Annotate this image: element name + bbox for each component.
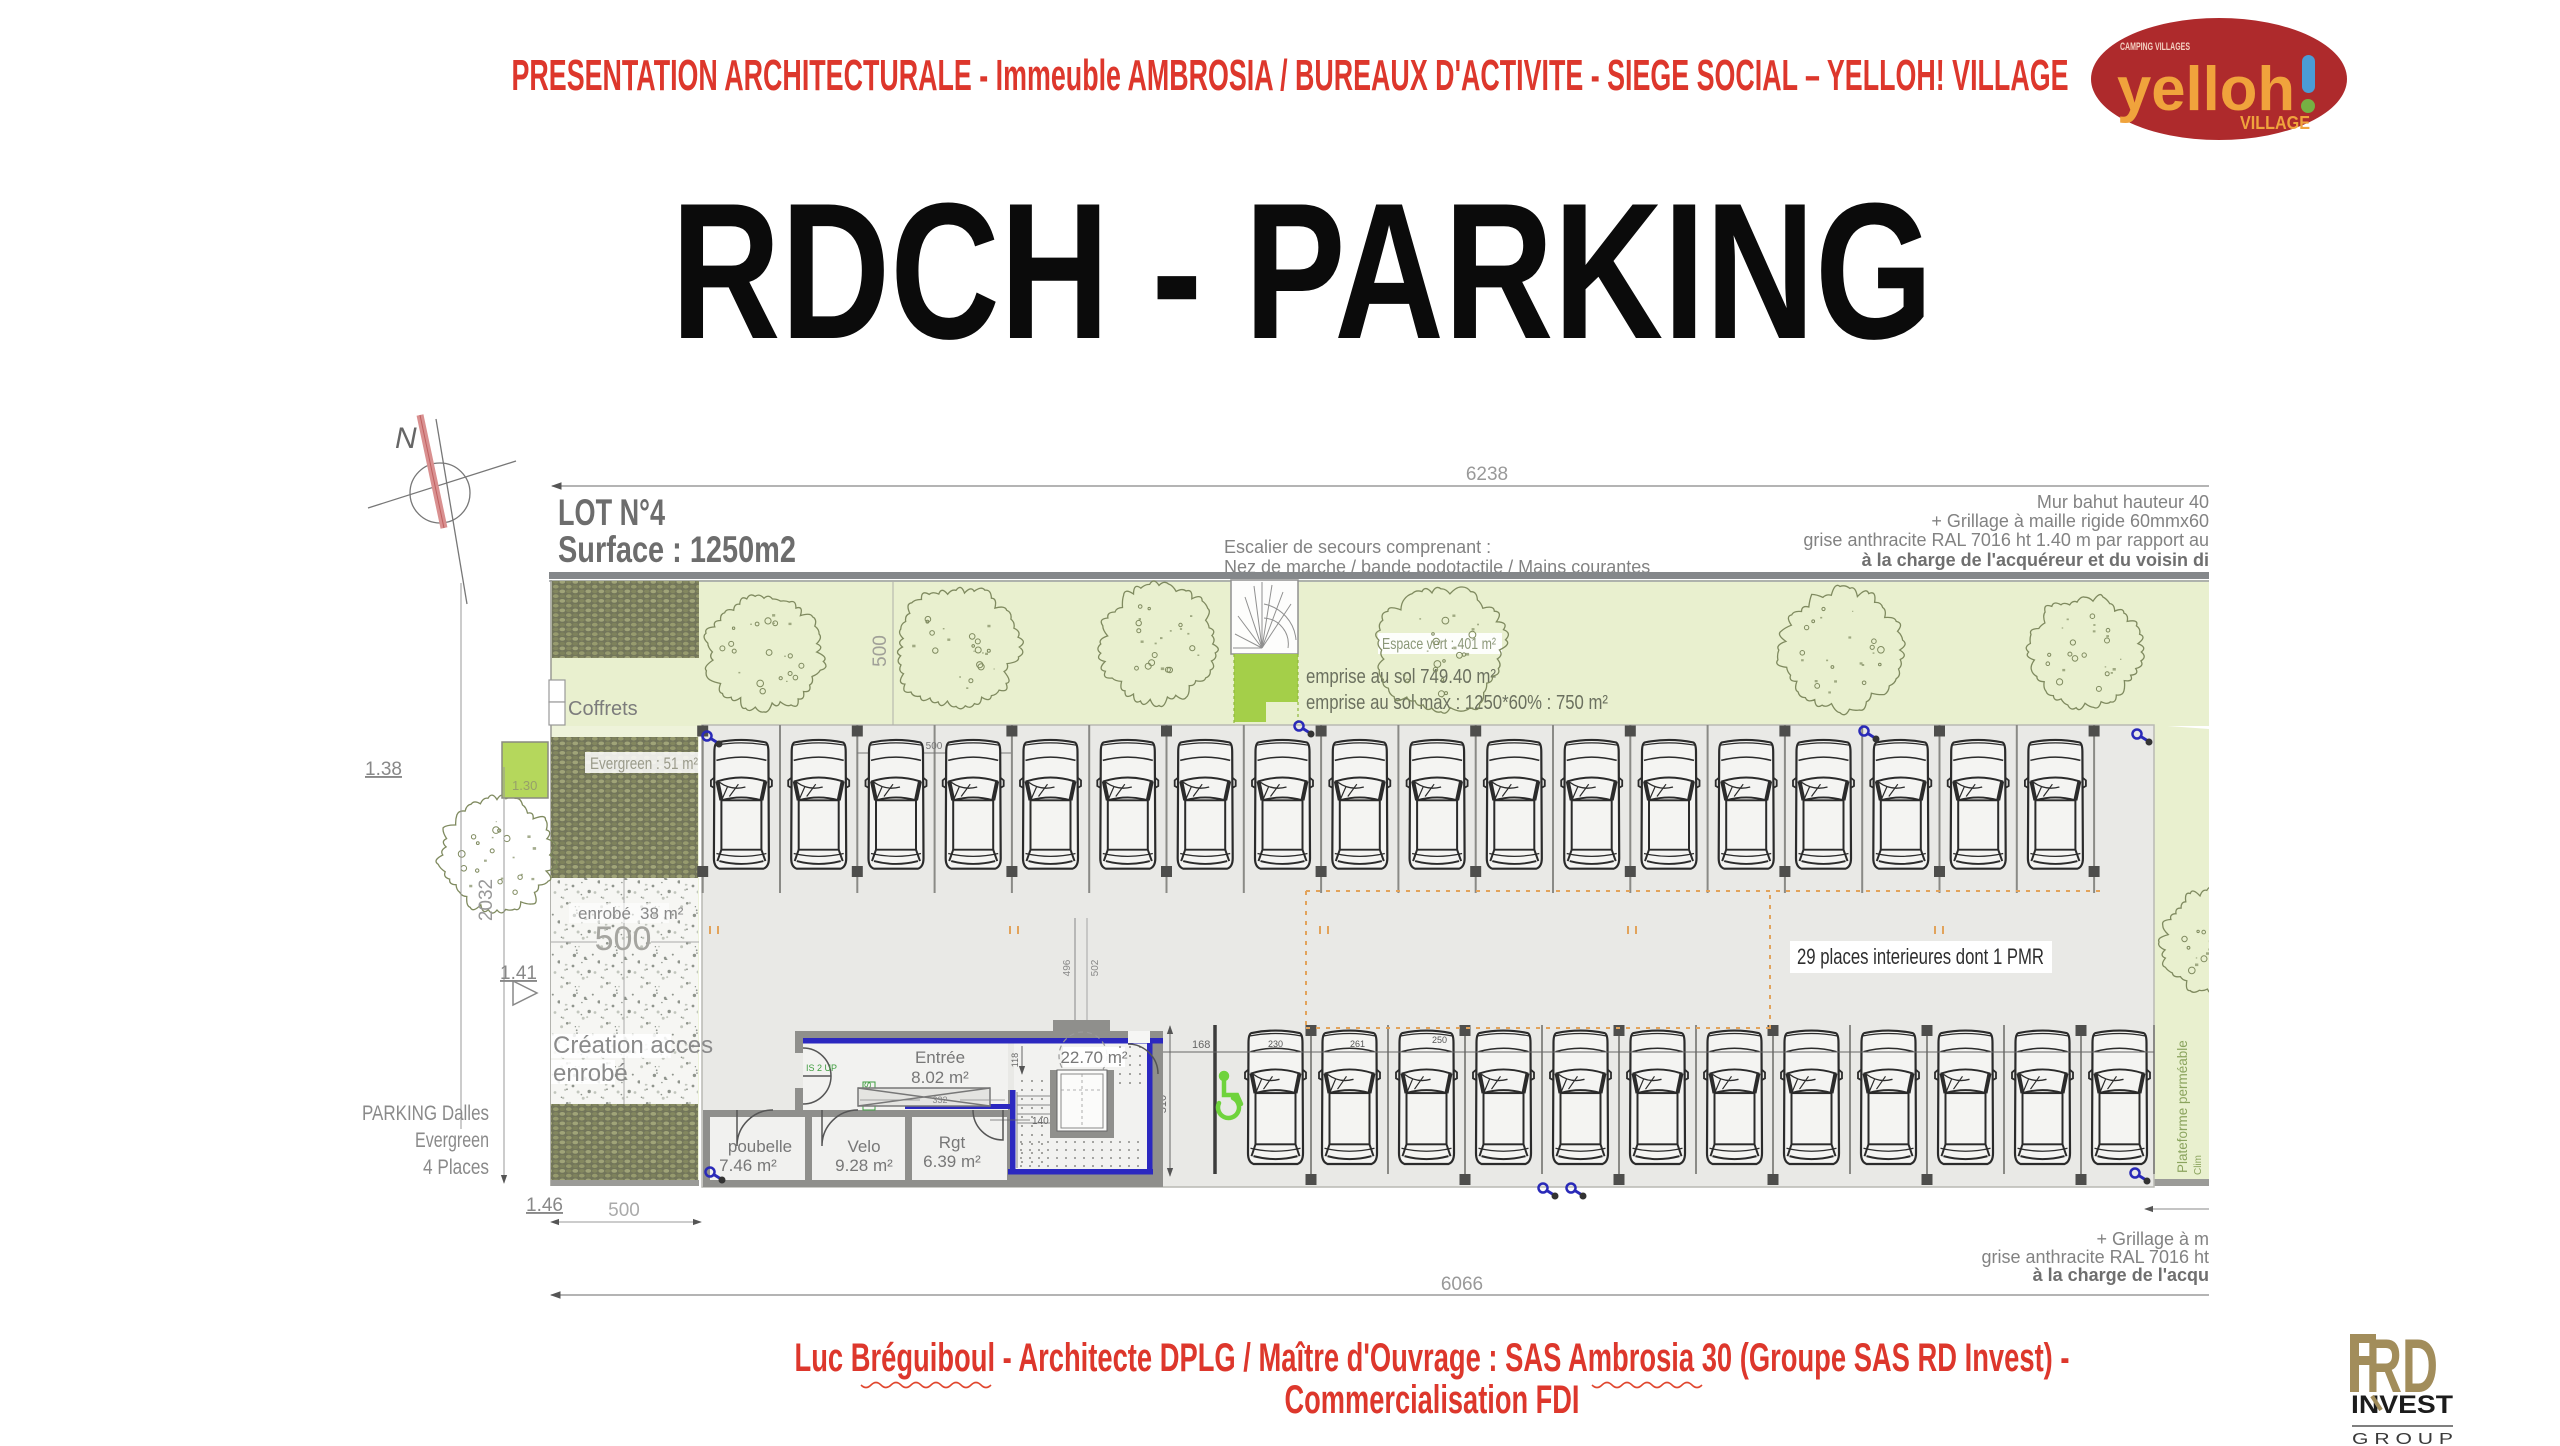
- svg-text:332: 332: [932, 1095, 947, 1105]
- svg-text:Plateforme perméable: Plateforme perméable: [2175, 1040, 2190, 1173]
- svg-text:PARKING Dalles: PARKING Dalles: [362, 1102, 489, 1125]
- svg-text:261: 261: [1350, 1039, 1365, 1049]
- svg-text:118: 118: [1010, 1053, 1020, 1067]
- svg-text:500: 500: [595, 920, 652, 958]
- svg-text:140: 140: [1032, 1116, 1049, 1127]
- svg-text:Commercialisation FDI: Commercialisation FDI: [1285, 1378, 1580, 1422]
- svg-text:22.70 m²: 22.70 m²: [1060, 1048, 1127, 1067]
- svg-text:230: 230: [1268, 1039, 1283, 1049]
- svg-text:Mur bahut hauteur 40: Mur bahut hauteur 40: [2037, 492, 2209, 512]
- svg-text:Rgt: Rgt: [939, 1133, 966, 1152]
- svg-text:1.46: 1.46: [526, 1195, 563, 1216]
- svg-text:4 Places: 4 Places: [423, 1156, 489, 1179]
- svg-text:LOT N°4: LOT N°4: [558, 492, 665, 533]
- svg-text:Velo: Velo: [847, 1137, 880, 1156]
- svg-text:8.02 m²: 8.02 m²: [911, 1068, 969, 1087]
- svg-text:Clim: Clim: [2193, 1155, 2204, 1175]
- svg-text:Evergreen: Evergreen: [415, 1129, 489, 1152]
- svg-text:496: 496: [1062, 959, 1073, 976]
- svg-text:poubelle: poubelle: [728, 1137, 792, 1156]
- svg-text:1.38: 1.38: [365, 759, 402, 780]
- svg-text:Coffrets: Coffrets: [568, 698, 638, 720]
- svg-text:IS 2 UP: IS 2 UP: [806, 1063, 837, 1073]
- svg-text:Espace vert : 401 m²: Espace vert : 401 m²: [1382, 636, 1497, 653]
- svg-text:6.39 m²: 6.39 m²: [923, 1152, 981, 1171]
- svg-text:enrobé: enrobé: [553, 1060, 628, 1087]
- svg-text:+ Grillage à m: + Grillage à m: [2096, 1229, 2209, 1249]
- svg-text:500: 500: [608, 1200, 640, 1221]
- svg-text:G R O U P: G R O U P: [2352, 1431, 2453, 1446]
- svg-text:Surface : 1250m2: Surface : 1250m2: [558, 529, 796, 570]
- svg-text:Entrée: Entrée: [915, 1048, 965, 1067]
- svg-text:6066: 6066: [1441, 1274, 1483, 1295]
- svg-text:Escalier de secours comprenant: Escalier de secours comprenant :: [1224, 537, 1491, 557]
- svg-text:grise anthracite RAL 7016 ht 1: grise anthracite RAL 7016 ht 1.40 m par …: [1803, 530, 2209, 550]
- svg-text:6238: 6238: [1466, 464, 1508, 485]
- svg-text:2032: 2032: [476, 879, 497, 921]
- svg-text:250: 250: [1432, 1035, 1447, 1045]
- svg-text:N: N: [395, 422, 417, 455]
- svg-text:+ Grillage à maille rigide 60m: + Grillage à maille rigide 60mmx60: [1931, 511, 2209, 531]
- svg-text:9.28 m²: 9.28 m²: [835, 1156, 893, 1175]
- svg-text:Création acces: Création acces: [553, 1032, 713, 1059]
- svg-text:CAMPING VILLAGES: CAMPING VILLAGES: [2120, 41, 2190, 53]
- svg-text:INVEST: INVEST: [2351, 1391, 2453, 1419]
- svg-text:PRESENTATION ARCHITECTURALE -: PRESENTATION ARCHITECTURALE - Immeuble A…: [512, 51, 2069, 100]
- svg-text:1.30: 1.30: [512, 778, 537, 793]
- svg-text:168: 168: [1192, 1039, 1210, 1051]
- svg-text:500: 500: [926, 741, 943, 752]
- svg-text:Evergreen : 51 m²: Evergreen : 51 m²: [590, 754, 698, 773]
- svg-text:emprise au sol 749.40 m²: emprise au sol 749.40 m²: [1306, 666, 1496, 688]
- svg-text:1.41: 1.41: [500, 963, 537, 984]
- svg-text:7.46 m²: 7.46 m²: [719, 1156, 777, 1175]
- svg-text:500: 500: [870, 635, 891, 667]
- svg-text:Luc Bréguiboul - Architecte DP: Luc Bréguiboul - Architecte DPLG / Maîtr…: [795, 1336, 2070, 1380]
- svg-text:RDCH - PARKING: RDCH - PARKING: [671, 163, 1933, 380]
- svg-text:29 places interieures dont: 29 places interieures dont 1 PMR: [1797, 944, 2044, 969]
- svg-text:grise anthracite RAL 7016 ht: grise anthracite RAL 7016 ht: [1982, 1247, 2209, 1267]
- svg-text:502: 502: [1090, 959, 1101, 976]
- svg-text:à la charge de l'acquéreur et: à la charge de l'acquéreur et du voisin …: [1862, 550, 2209, 570]
- svg-text:à la charge de l'acqu: à la charge de l'acqu: [2033, 1265, 2209, 1285]
- svg-text:VILLAGE: VILLAGE: [2240, 113, 2310, 133]
